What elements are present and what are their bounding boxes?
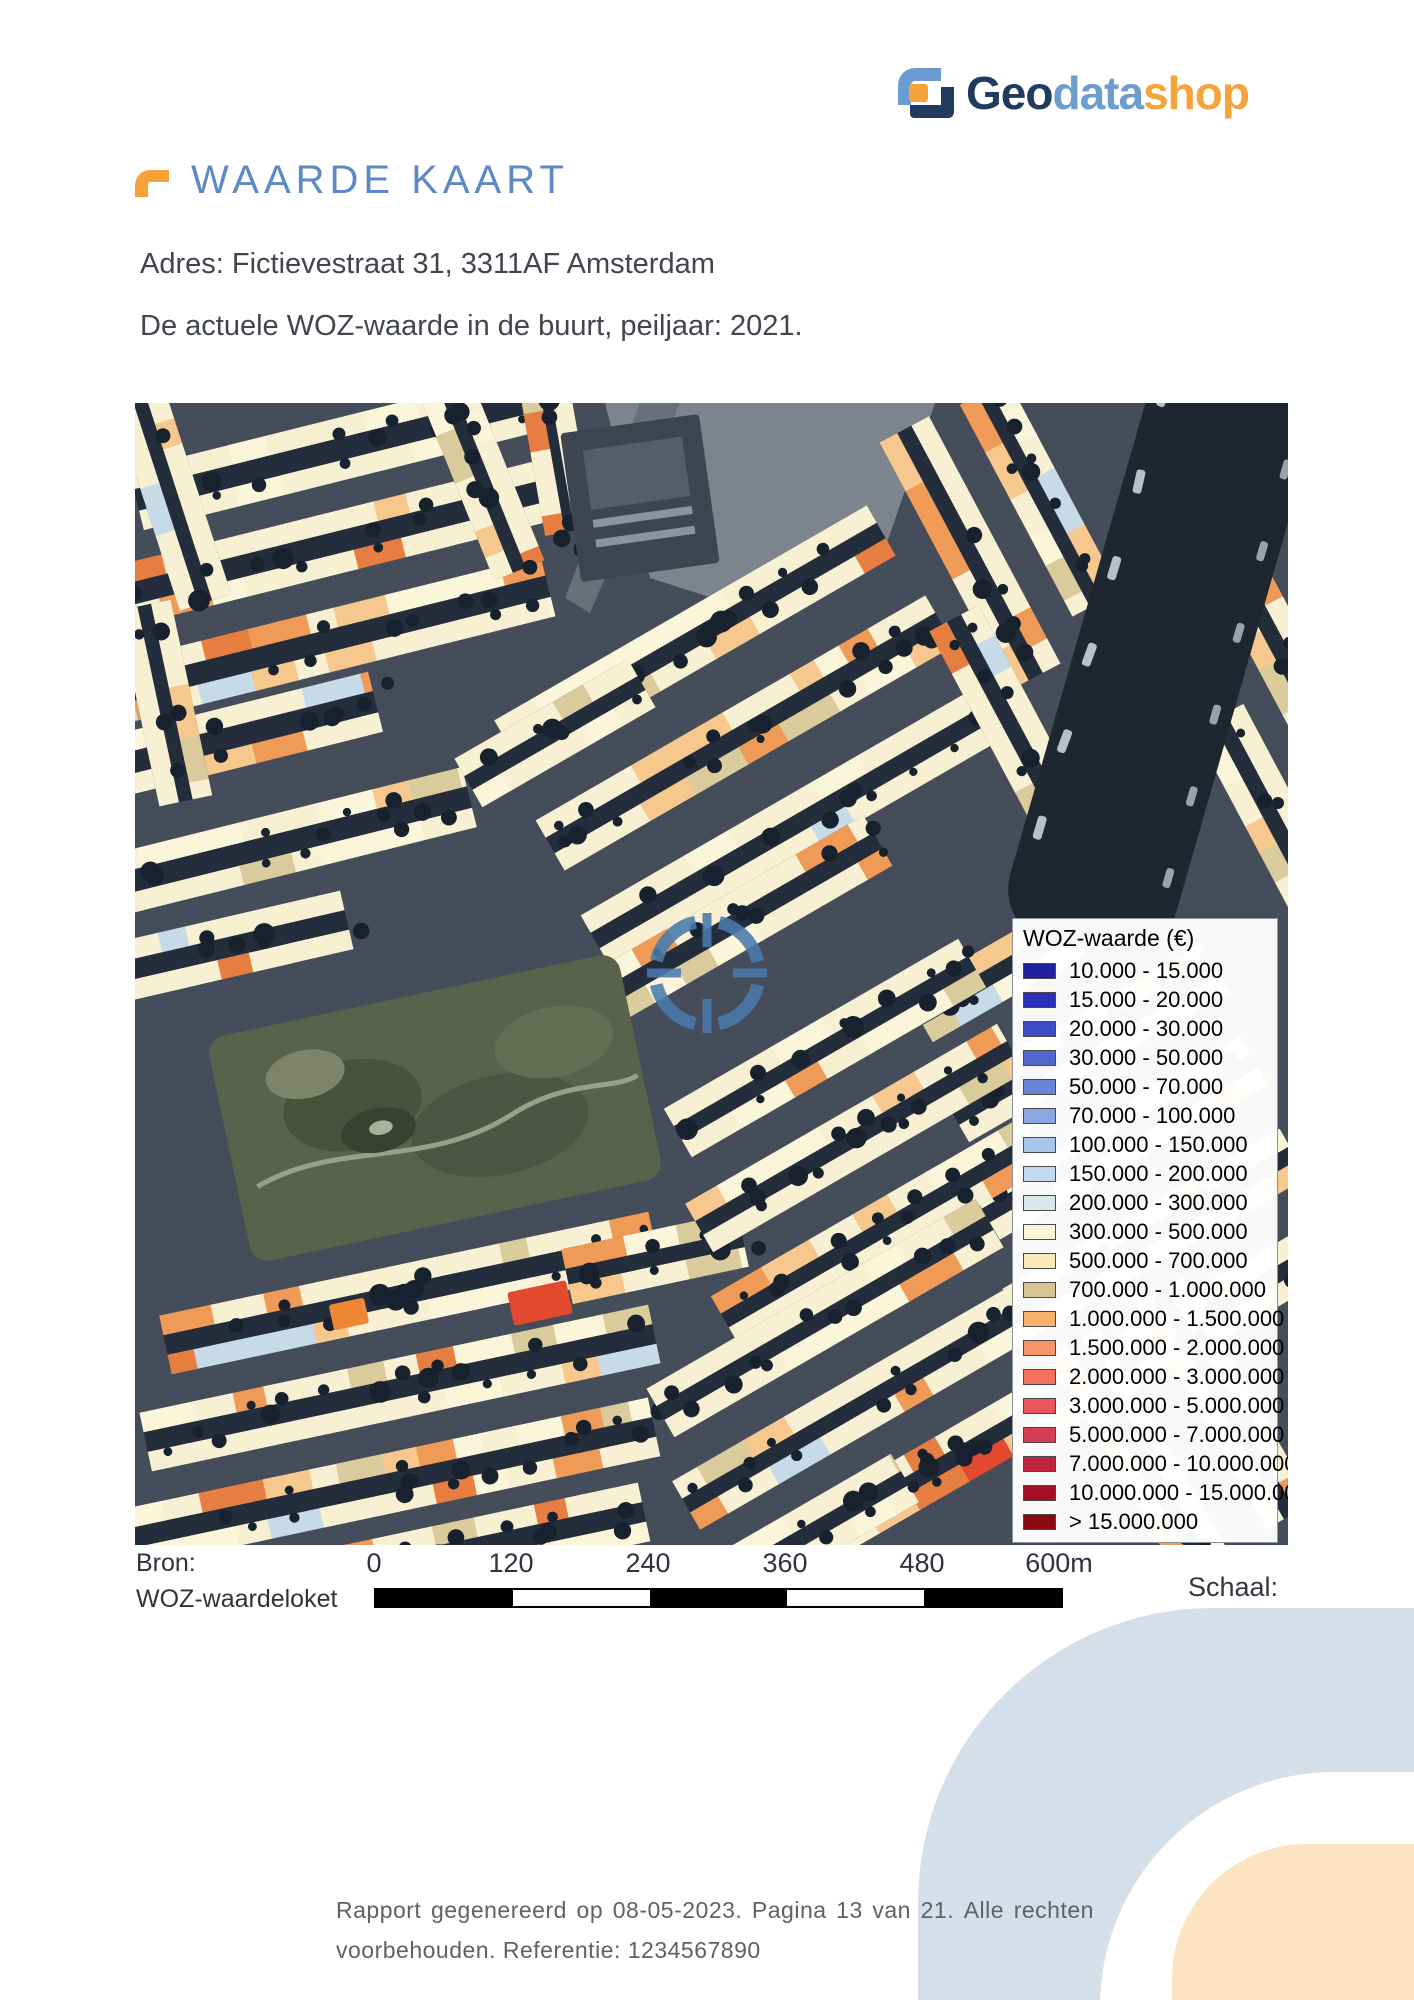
legend-entry: 10.000.000 - 15.000.000 xyxy=(1023,1478,1277,1507)
legend-swatch xyxy=(1023,1398,1056,1414)
legend-swatch xyxy=(1023,1108,1056,1124)
subtitle-line: De actuele WOZ-waarde in de buurt, peilj… xyxy=(140,310,803,343)
page-title: WAARDE KAART xyxy=(191,158,569,203)
scalebar-tick-label: 600m xyxy=(1025,1548,1093,1579)
legend-entry-label: > 15.000.000 xyxy=(1069,1509,1198,1535)
legend-entry-label: 10.000 - 15.000 xyxy=(1069,958,1223,984)
geodatashop-logo: Geodatashop xyxy=(898,66,1249,120)
legend-entry-label: 100.000 - 150.000 xyxy=(1069,1132,1248,1158)
legend-entry: 10.000 - 15.000 xyxy=(1023,956,1277,985)
legend-entry-label: 500.000 - 700.000 xyxy=(1069,1248,1248,1274)
legend-entry-label: 700.000 - 1.000.000 xyxy=(1069,1277,1266,1303)
legend-swatch xyxy=(1023,1427,1056,1443)
legend-entry: 7.000.000 - 10.000.000 xyxy=(1023,1449,1277,1478)
legend-entry: 150.000 - 200.000 xyxy=(1023,1159,1277,1188)
scalebar-tick-label: 240 xyxy=(625,1548,670,1579)
footer-line-1: Rapportgegenereerdop08-05-2023.Pagina13v… xyxy=(336,1897,1094,1924)
legend-rows: 10.000 - 15.00015.000 - 20.00020.000 - 3… xyxy=(1023,956,1277,1536)
legend-swatch xyxy=(1023,963,1056,979)
legend-entry-label: 20.000 - 30.000 xyxy=(1069,1016,1223,1042)
geodatashop-logo-icon xyxy=(898,68,954,118)
legend-entry: 1.000.000 - 1.500.000 xyxy=(1023,1304,1277,1333)
address-line: Adres: Fictievestraat 31, 3311AF Amsterd… xyxy=(140,248,715,281)
logo-wordmark: Geodatashop xyxy=(966,66,1249,120)
scalebar-segment xyxy=(787,1590,924,1606)
scalebar-tick-label: 0 xyxy=(366,1548,381,1579)
legend-entry-label: 150.000 - 200.000 xyxy=(1069,1161,1248,1187)
legend-entry: 70.000 - 100.000 xyxy=(1023,1101,1277,1130)
legend-entry-label: 50.000 - 70.000 xyxy=(1069,1074,1223,1100)
legend-swatch xyxy=(1023,1311,1056,1327)
legend-entry: > 15.000.000 xyxy=(1023,1507,1277,1536)
legend-swatch xyxy=(1023,1224,1056,1240)
scalebar-segment xyxy=(924,1590,1061,1606)
legend-entry-label: 15.000 - 20.000 xyxy=(1069,987,1223,1013)
legend-swatch xyxy=(1023,1195,1056,1211)
source-name: WOZ-waardeloket xyxy=(136,1585,337,1614)
legend-entry: 200.000 - 300.000 xyxy=(1023,1188,1277,1217)
legend-entry-label: 1.000.000 - 1.500.000 xyxy=(1069,1306,1284,1332)
legend-swatch xyxy=(1023,992,1056,1008)
legend-swatch xyxy=(1023,1166,1056,1182)
legend-entry: 15.000 - 20.000 xyxy=(1023,985,1277,1014)
legend-entry-label: 3.000.000 - 5.000.000 xyxy=(1069,1393,1284,1419)
legend-entry-label: 2.000.000 - 3.000.000 xyxy=(1069,1364,1284,1390)
legend-swatch xyxy=(1023,1485,1056,1501)
logo-orange-square xyxy=(909,84,928,102)
scalebar-tick-label: 480 xyxy=(899,1548,944,1579)
legend-entry-label: 300.000 - 500.000 xyxy=(1069,1219,1248,1245)
legend-entry: 300.000 - 500.000 xyxy=(1023,1217,1277,1246)
legend-swatch xyxy=(1023,1253,1056,1269)
legend-entry-label: 30.000 - 50.000 xyxy=(1069,1045,1223,1071)
scalebar xyxy=(374,1588,1063,1608)
logo-text-shop: shop xyxy=(1143,67,1249,119)
footer: Rapportgegenereerdop08-05-2023.Pagina13v… xyxy=(336,1897,1094,1964)
legend-entry-label: 200.000 - 300.000 xyxy=(1069,1190,1248,1216)
footer-line-2: voorbehouden. Referentie: 1234567890 xyxy=(336,1937,1094,1964)
legend-entry-label: 10.000.000 - 15.000.000 xyxy=(1069,1480,1288,1506)
legend-swatch xyxy=(1023,1079,1056,1095)
logo-text-geo: Geo xyxy=(966,67,1052,119)
corner-accent-icon xyxy=(135,170,169,197)
legend-entry: 500.000 - 700.000 xyxy=(1023,1246,1277,1275)
legend-swatch xyxy=(1023,1137,1056,1153)
legend-entry: 3.000.000 - 5.000.000 xyxy=(1023,1391,1277,1420)
legend-entry-label: 1.500.000 - 2.000.000 xyxy=(1069,1335,1284,1361)
legend-entry: 2.000.000 - 3.000.000 xyxy=(1023,1362,1277,1391)
logo-text-data: data xyxy=(1052,67,1143,119)
legend-entry-label: 7.000.000 - 10.000.000 xyxy=(1069,1451,1288,1477)
legend-entry: 100.000 - 150.000 xyxy=(1023,1130,1277,1159)
legend-entry-label: 70.000 - 100.000 xyxy=(1069,1103,1235,1129)
scalebar-tick-label: 120 xyxy=(488,1548,533,1579)
woz-value-map: WOZ-waarde (€) 10.000 - 15.00015.000 - 2… xyxy=(135,403,1288,1545)
source-label: Bron: xyxy=(136,1549,196,1578)
legend-swatch xyxy=(1023,1340,1056,1356)
legend-entry: 1.500.000 - 2.000.000 xyxy=(1023,1333,1277,1362)
title-row: WAARDE KAART xyxy=(135,158,569,203)
legend-swatch xyxy=(1023,1282,1056,1298)
report-page: Geodatashop WAARDE KAART Adres: Fictieve… xyxy=(0,0,1414,2000)
scalebar-tick-label: 360 xyxy=(762,1548,807,1579)
scalebar-segment xyxy=(650,1590,787,1606)
legend-swatch xyxy=(1023,1021,1056,1037)
legend-entry: 30.000 - 50.000 xyxy=(1023,1043,1277,1072)
scalebar-segment xyxy=(376,1590,513,1606)
legend-entry: 50.000 - 70.000 xyxy=(1023,1072,1277,1101)
scalebar-segment xyxy=(513,1590,650,1606)
legend-entry-label: 5.000.000 - 7.000.000 xyxy=(1069,1422,1284,1448)
legend-swatch xyxy=(1023,1514,1056,1530)
legend-entry: 20.000 - 30.000 xyxy=(1023,1014,1277,1043)
legend-swatch xyxy=(1023,1369,1056,1385)
legend-entry: 5.000.000 - 7.000.000 xyxy=(1023,1420,1277,1449)
legend-swatch xyxy=(1023,1456,1056,1472)
legend-title: WOZ-waarde (€) xyxy=(1023,925,1277,952)
legend-swatch xyxy=(1023,1050,1056,1066)
legend-entry: 700.000 - 1.000.000 xyxy=(1023,1275,1277,1304)
map-legend: WOZ-waarde (€) 10.000 - 15.00015.000 - 2… xyxy=(1012,918,1278,1543)
